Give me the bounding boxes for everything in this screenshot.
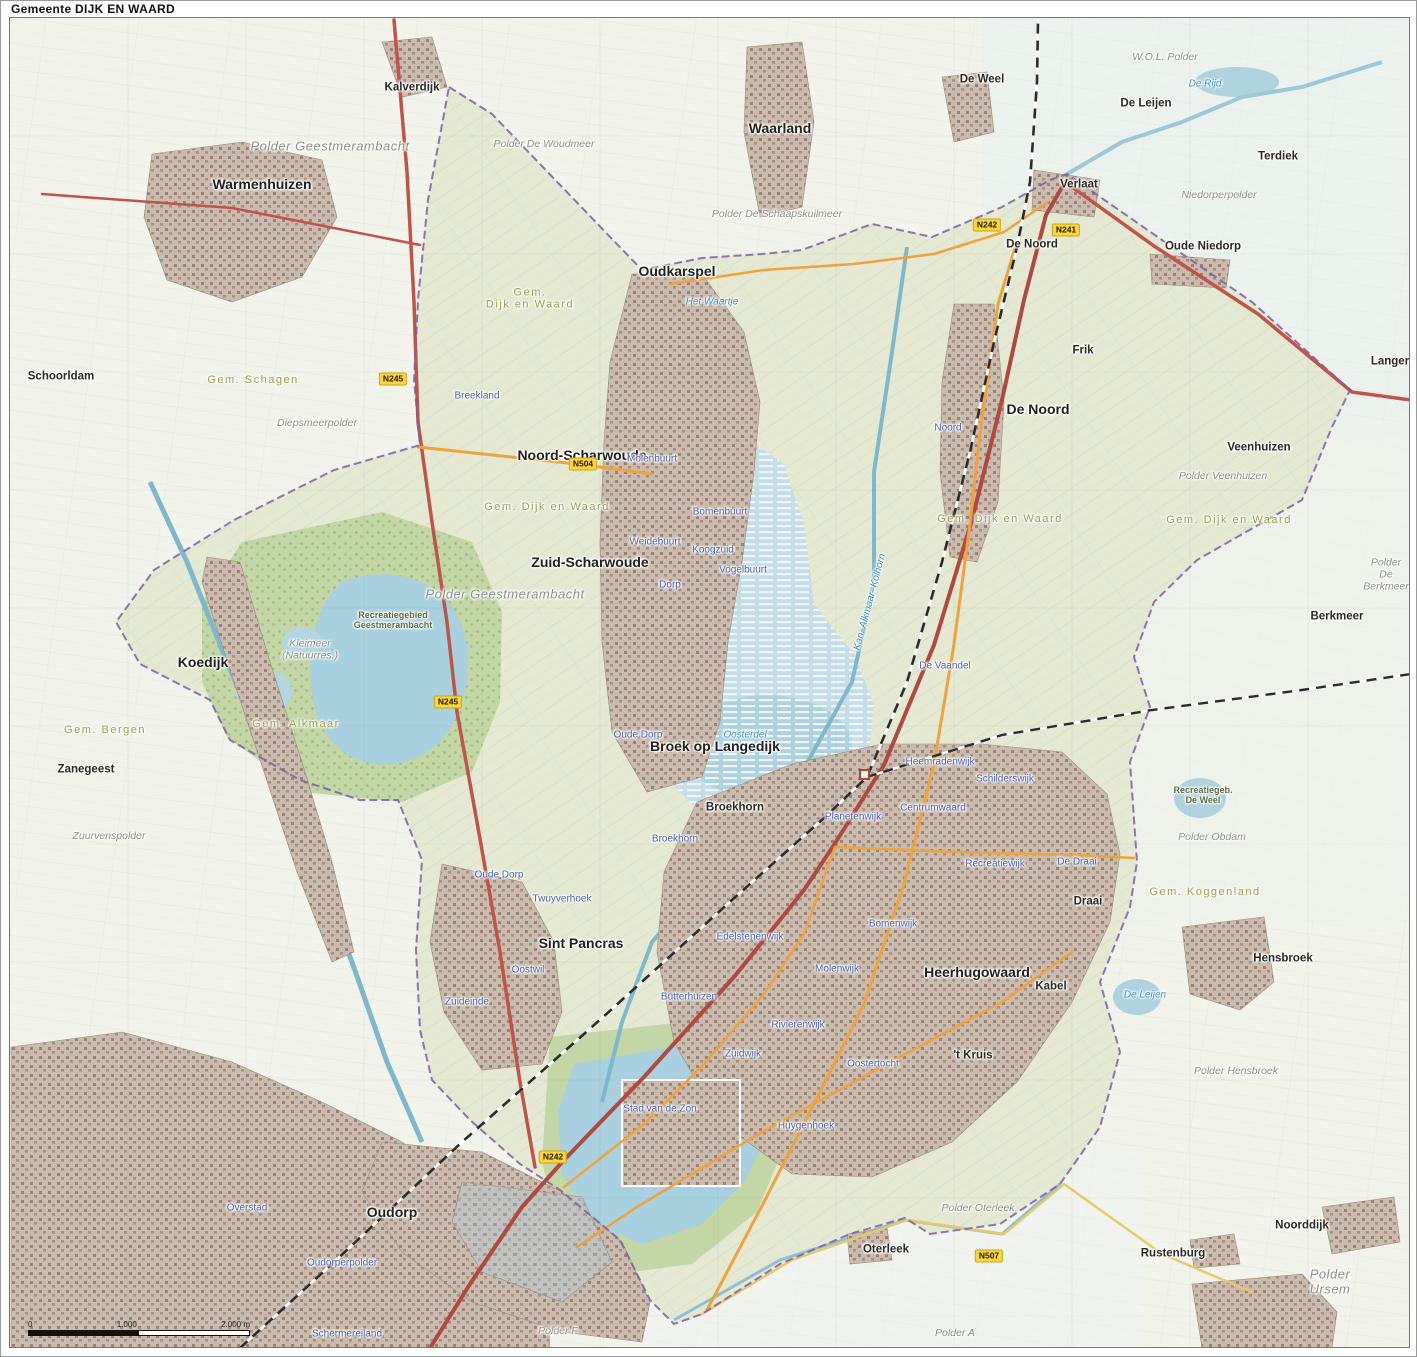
label-zuidwijk: Zuidwijk [725, 1048, 761, 1059]
label-verlaat: Verlaat [1060, 179, 1098, 192]
map-canvas[interactable]: KalverdijkWarmenhuizenWaarlandOudkarspel… [9, 17, 1410, 1348]
label-molenwijk: Molenwijk [815, 963, 859, 974]
label-oostertocht: Oostertocht [847, 1058, 899, 1069]
label-oude-dorp-pancras: Oude Dorp [475, 869, 524, 880]
label-polder-geestmerambacht: Polder Geestmerambacht [250, 140, 409, 155]
label-de-noord-top: De Noord [1006, 239, 1058, 252]
label-de-leijen-lake: De Leijen [1124, 989, 1166, 1000]
map-page: Gemeente DIJK EN WAARD [0, 0, 1417, 1357]
label-terdiek: Terdiek [1258, 151, 1298, 164]
label-broekhorn-wijk: Broekhorn [652, 833, 698, 844]
label-heemradenwijk: Heemradenwijk [906, 756, 975, 767]
scale-bar-track [28, 1330, 250, 1336]
shield-n245: N245 [379, 373, 407, 386]
label-gem-koggenland: Gem. Koggenland [1149, 886, 1260, 898]
label-breekland: Breekland [454, 390, 499, 401]
shield-n242: N242 [539, 1151, 567, 1164]
label-zuid-scharwoude: Zuid-Scharwoude [531, 555, 648, 571]
label-oude-niedorp: Oude Niedorp [1165, 241, 1241, 254]
label-de-leijen: De Leijen [1120, 98, 1171, 111]
label-koogzuid: Koogzuid [692, 544, 734, 555]
label-schoorldam: Schoorldam [28, 371, 94, 384]
label-gem-dijk-en-waard: Gem. Dijk en Waard [1166, 514, 1292, 526]
label-butterhuizen: Butterhuizen [661, 991, 717, 1002]
label-bomenbuurt: Bomenbuurt [693, 506, 747, 517]
scale-mid: 1.000 [117, 1320, 137, 1329]
label-noord-scharwoude: Noord-Scharwoude [517, 448, 646, 464]
label-kalverdijk: Kalverdijk [385, 82, 440, 95]
label-berkmeer: Berkmeer [1310, 611, 1363, 624]
label-broekhorn: Broekhorn [706, 802, 764, 815]
label-oosterdel: Oosterdel [723, 729, 766, 740]
label-recreatiegebied-de-weel: Recreatiegeb. De Weel [1173, 785, 1232, 805]
shield-n242: N242 [973, 219, 1001, 232]
scale-zero: 0 [28, 1320, 32, 1329]
label-gem-dijk-en-waard: Gem. Dijk en Waard [486, 287, 574, 312]
label-de-weel: De Weel [960, 74, 1005, 87]
label-de-draai: De Draai [1057, 856, 1096, 867]
label-noorddijk: Noorddijk [1275, 1220, 1329, 1233]
label-gem-alkmaar: Gem. Alkmaar [252, 718, 340, 730]
label-centrumwaard: Centrumwaard [900, 802, 966, 813]
label-de-rijd: De Rijd [1189, 78, 1222, 89]
scale-bar: 0 1.000 2.000 m [28, 1320, 250, 1336]
label-recreatiewijk: Recreatiewijk [965, 858, 1024, 869]
label-broek-op-langedijk: Broek op Langedijk [650, 739, 780, 755]
label-polder-obdam: Polder Obdam [1178, 832, 1246, 844]
label-gem-bergen: Gem. Bergen [64, 724, 146, 736]
label-gem-schagen: Gem. Schagen [207, 374, 298, 386]
label-polder-veenhuizen: Polder Veenhuizen [1179, 471, 1267, 483]
label-huygenhoek: Huygenhoek [778, 1120, 834, 1131]
label-de-noord: De Noord [1007, 402, 1070, 418]
scale-bar-solid [29, 1331, 139, 1335]
label-t-kruis: 't Kruis [953, 1050, 992, 1063]
label-polder-de-schaapskuilmeer: Polder De Schaapskuilmeer [712, 209, 842, 221]
label-warmenhuizen: Warmenhuizen [212, 177, 311, 193]
label-zuurvenspolder: Zuurvenspolder [73, 831, 146, 843]
label-polder-oterleek: Polder Oterleek [942, 1203, 1015, 1215]
label-gem-dijk-en-waard: Gem. Dijk en Waard [484, 501, 610, 513]
shield-n241: N241 [1052, 224, 1080, 237]
label-polder-geestmerambacht: Polder Geestmerambacht [425, 588, 584, 603]
label-overstad: Overstad [227, 1202, 268, 1213]
label-frik: Frik [1072, 345, 1093, 358]
shield-n504: N504 [569, 458, 597, 471]
scale-end: 2.000 m [221, 1320, 250, 1329]
label-polder-ursem: Polder Ursem [1291, 1267, 1370, 1296]
label-zanegeest: Zanegeest [58, 764, 115, 777]
label-polder-de-berkmeer: Polder De Berkmeer [1363, 557, 1409, 592]
shield-n245: N245 [434, 696, 462, 709]
label-oudorperpolder: Oudorperpolder [307, 1257, 377, 1268]
label-oude-dorp: Oude Dorp [614, 729, 663, 740]
label-dorp: Dorp [659, 579, 681, 590]
shield-n507: N507 [975, 1250, 1003, 1263]
label-twuyverhoek: Twuyverhoek [533, 893, 592, 904]
label-edelstenenwijk: Edelstenenwijk [717, 931, 784, 942]
label-oostwil: Oostwil [512, 964, 545, 975]
label-kleimeer: Kleimeer (Natuurres.) [282, 638, 338, 662]
label-heerhugowaard: Heerhugowaard [924, 965, 1030, 981]
label-molenbuurt: Molenbuurt [627, 453, 677, 464]
label-wol-polder: W.O.L. Polder [1132, 52, 1198, 64]
label-oudorp: Oudorp [367, 1205, 418, 1221]
label-veenhuizen: Veenhuizen [1227, 442, 1290, 455]
label-de-vaandel: De Vaandel [919, 660, 971, 671]
label-gem-dijk-en-waard: Gem. Dijk en Waard [937, 513, 1063, 525]
label-sint-pancras: Sint Pancras [539, 936, 624, 952]
label-schermereiland: Schermereiland [312, 1328, 382, 1339]
label-weidebuurt: Weidebuurt [630, 536, 681, 547]
label-kanaal-alkmaar-kolhorn: Kan. Alkmaar–Kolhorn [852, 552, 889, 651]
label-zuideinde: Zuideinde [445, 996, 489, 1007]
label-layer: KalverdijkWarmenhuizenWaarlandOudkarspel… [10, 18, 1409, 1347]
label-oterleek: Oterleek [863, 1244, 909, 1257]
label-hensbroek: Hensbroek [1253, 953, 1312, 966]
label-rustenburg: Rustenburg [1141, 1248, 1206, 1261]
label-koedijk: Koedijk [178, 655, 229, 671]
label-stad-van-de-zon: Stad van de Zon [623, 1103, 696, 1114]
label-langereis: Langereis [1371, 356, 1410, 369]
label-polder-de-woudmeer: Polder De Woudmeer [494, 139, 595, 151]
label-vogelbuurt: Vogelbuurt [719, 564, 767, 575]
map-title: Gemeente DIJK EN WAARD [11, 2, 175, 16]
label-recreatiegebied-geestmerambacht: Recreatiegebied Geestmerambacht [354, 610, 433, 630]
label-diepsmeerpolder: Diepsmeerpolder [277, 418, 357, 430]
label-waarland: Waarland [749, 121, 812, 137]
label-draai: Draai [1074, 896, 1103, 909]
label-kabel: Kabel [1035, 981, 1066, 994]
label-niedorperpolder: Niedorperpolder [1181, 190, 1256, 202]
label-polder-a: Polder A [935, 1328, 975, 1340]
label-oudkarspel: Oudkarspel [638, 264, 715, 280]
label-polder-f: Polder F [538, 1326, 578, 1338]
label-noord: Noord [934, 422, 961, 433]
label-schilderswijk: Schilderswijk [976, 773, 1034, 784]
label-het-waartje: Het Waartje [686, 296, 739, 307]
label-bomenwijk: Bomenwijk [869, 918, 917, 929]
label-polder-hensbroek: Polder Hensbroek [1194, 1066, 1278, 1078]
label-planetenwijk: Planetenwijk [825, 811, 881, 822]
label-rivierenwijk: Rivierenwijk [771, 1019, 824, 1030]
